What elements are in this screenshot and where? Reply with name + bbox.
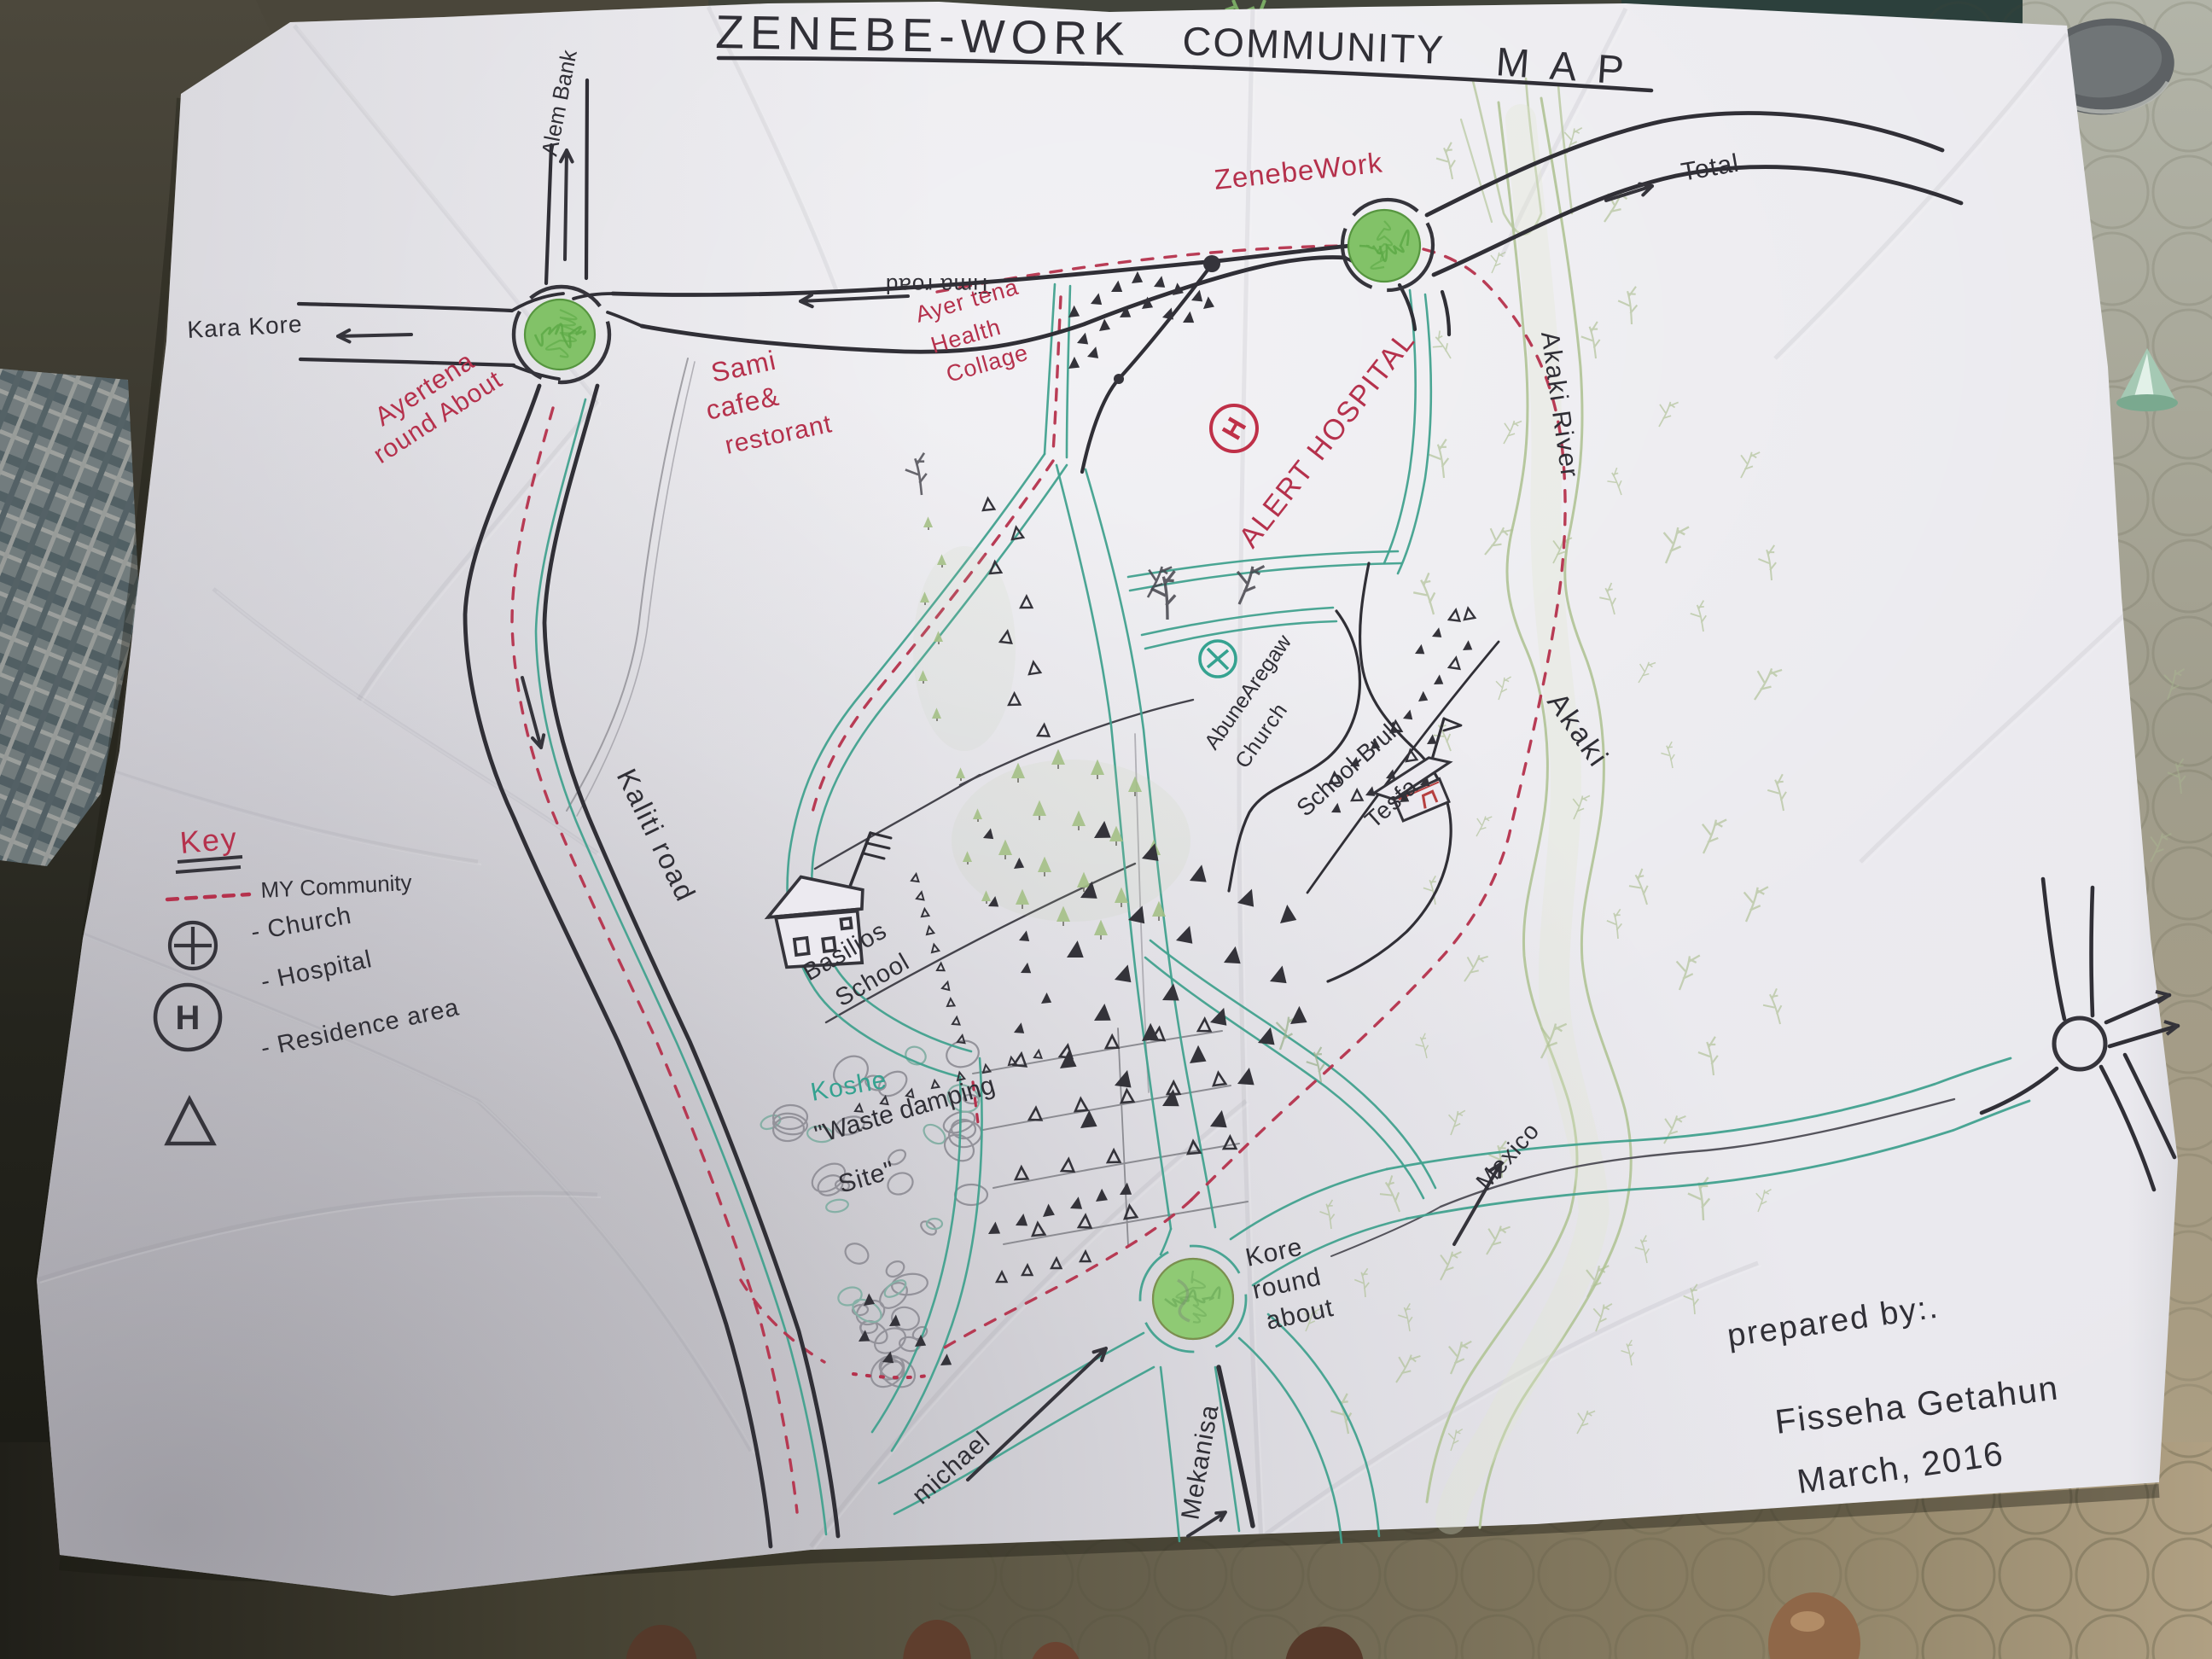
svg-text:ZENEBE-WORK: ZENEBE-WORK [715,5,1131,65]
svg-text:Key: Key [178,820,239,860]
svg-text:COMMUNITY: COMMUNITY [1182,18,1446,73]
svg-text:H: H [176,999,201,1037]
